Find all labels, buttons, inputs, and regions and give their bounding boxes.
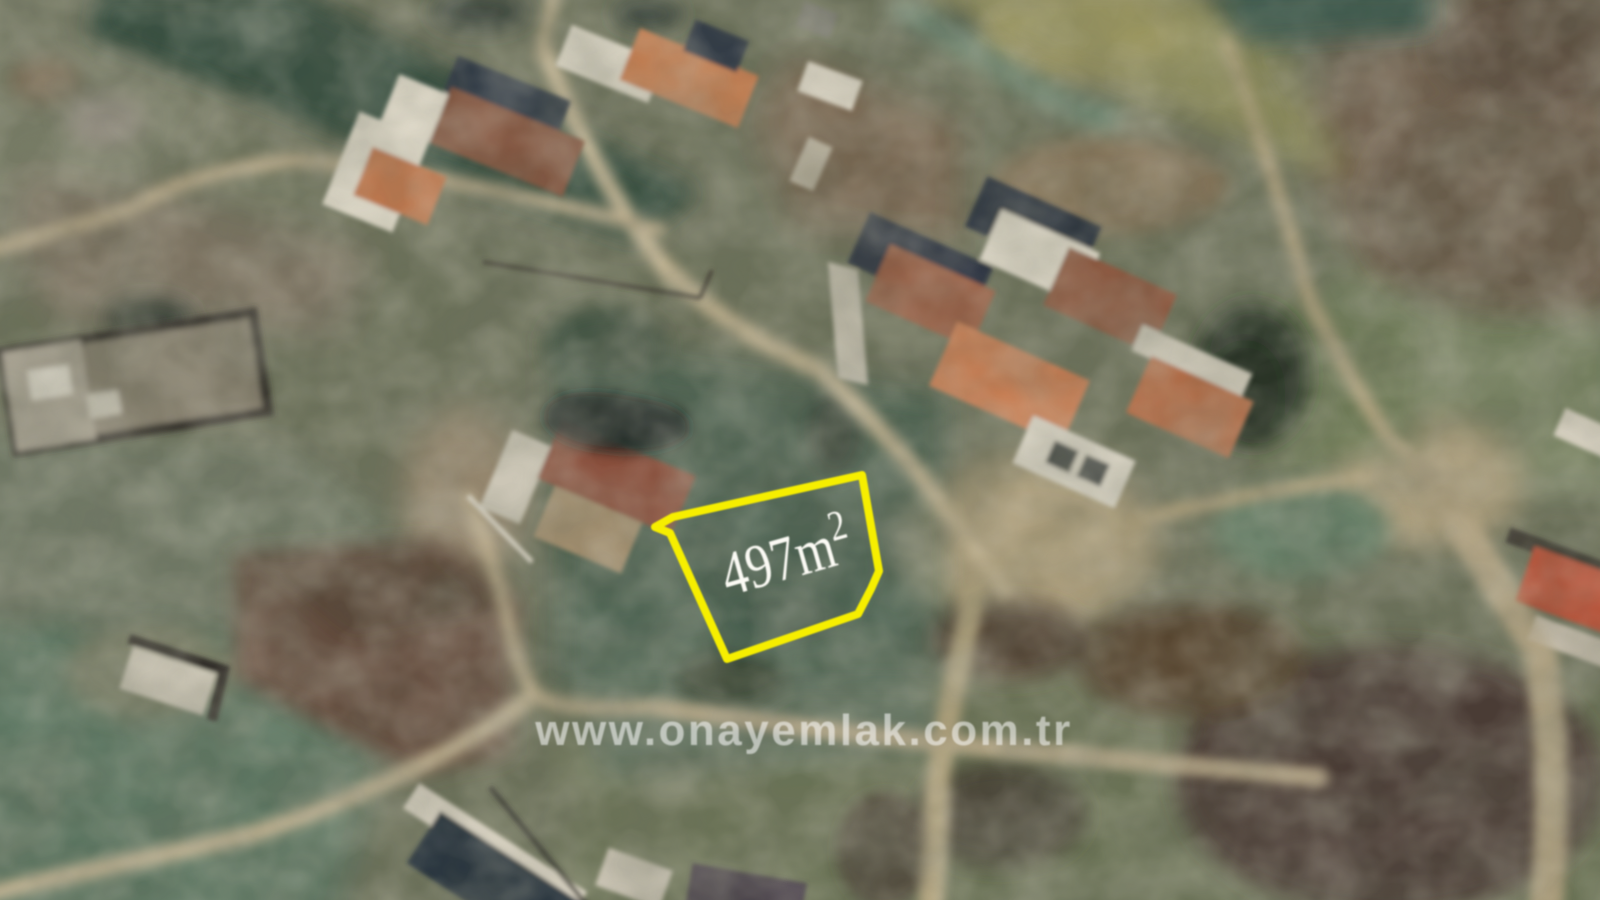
svg-text:www.onayemlak.com.tr: www.onayemlak.com.tr [534, 706, 1072, 755]
